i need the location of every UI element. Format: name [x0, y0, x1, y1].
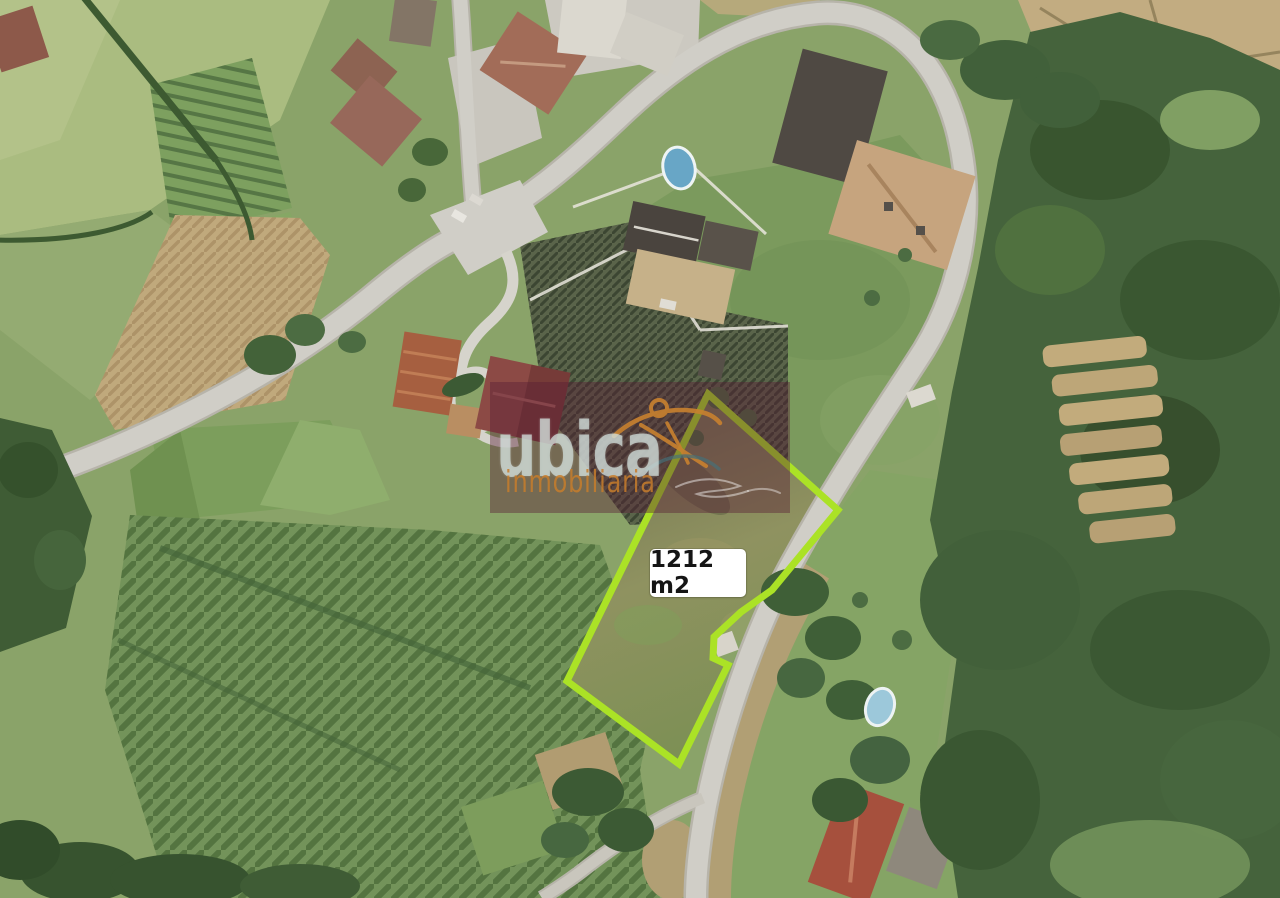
barn-roof	[389, 0, 437, 47]
watermark-tagline: inmobiliaria	[505, 468, 656, 498]
aerial-photo: ubica inmobiliaria 1212 m2	[0, 0, 1280, 898]
parcel-area-label: 1212 m2	[650, 549, 746, 597]
house-roof	[393, 331, 462, 415]
